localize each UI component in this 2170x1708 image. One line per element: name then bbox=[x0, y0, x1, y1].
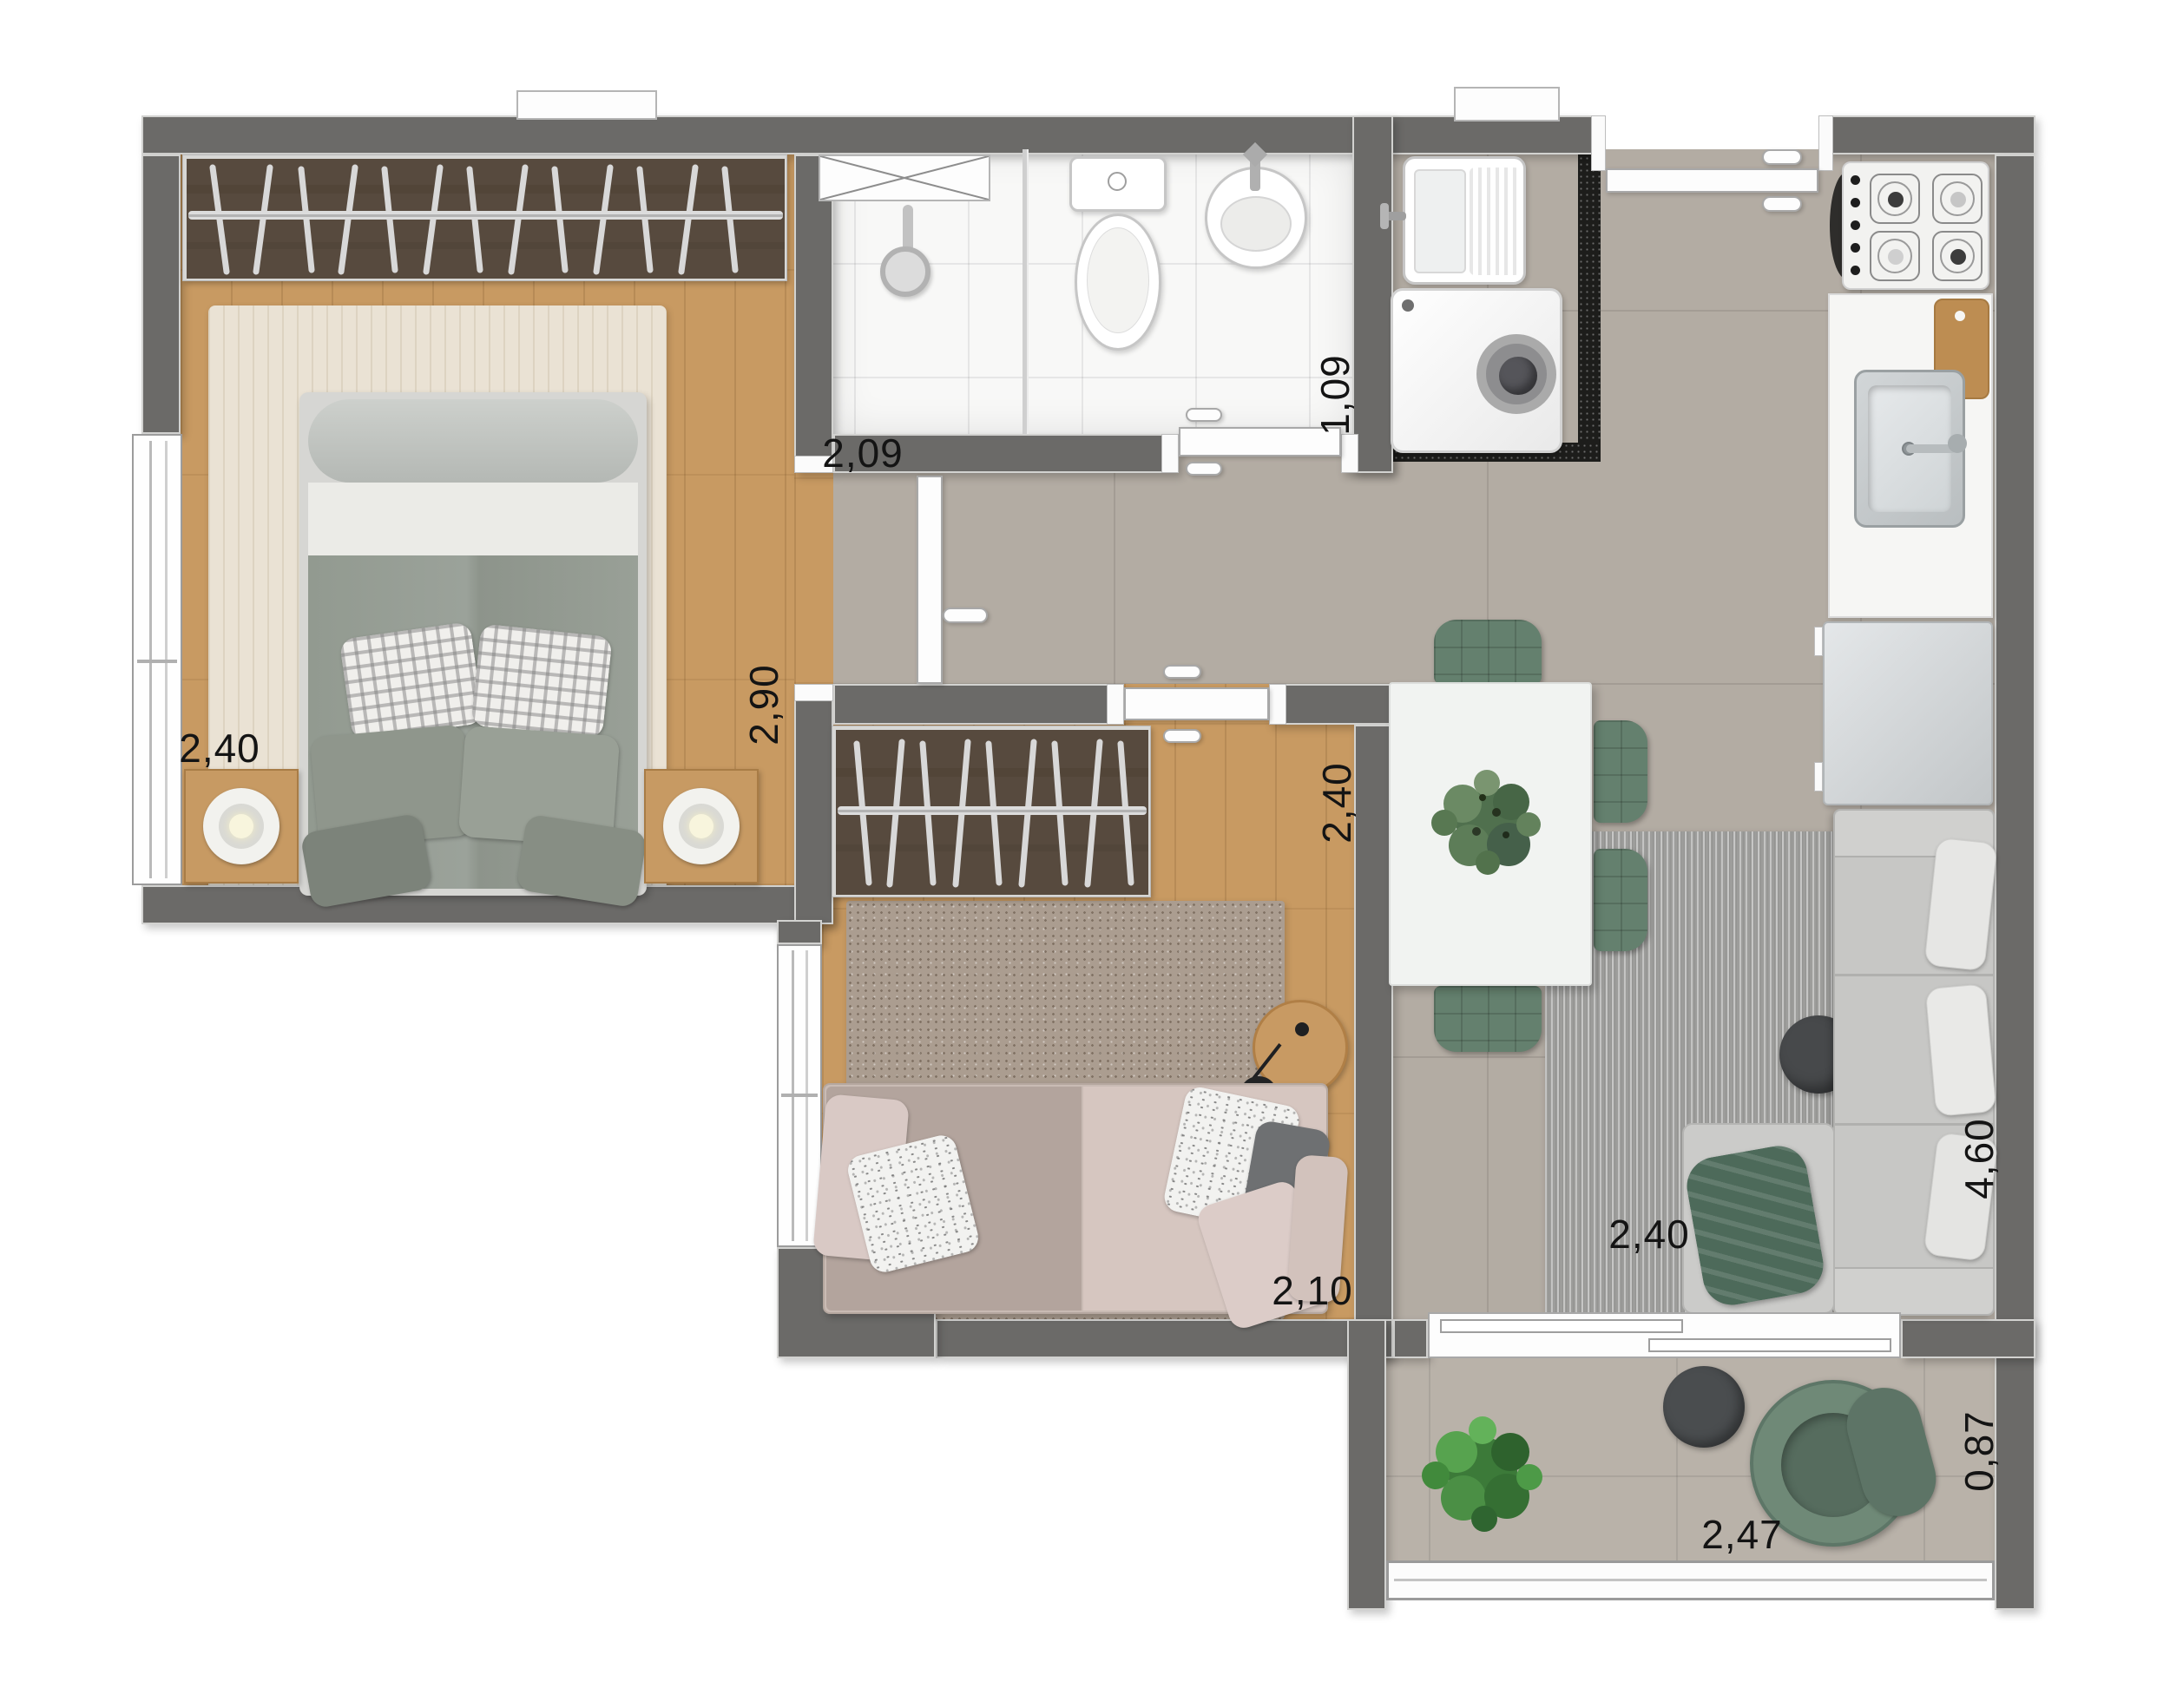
door-handle-icon bbox=[943, 608, 988, 623]
dimension-label-living-depth: 4,60 bbox=[1957, 1102, 2001, 1215]
washing-machine-icon bbox=[1391, 288, 1562, 453]
toilet-flush-button bbox=[1108, 172, 1127, 191]
bedroom-2-closet bbox=[832, 726, 1151, 897]
stove-knob bbox=[1851, 175, 1860, 185]
door-handle-icon bbox=[1186, 408, 1222, 422]
wall-segment bbox=[1393, 1319, 1428, 1358]
sofa-armrest bbox=[1835, 1267, 1993, 1314]
toilet-seat-line bbox=[1087, 227, 1149, 333]
dining-chair bbox=[1594, 720, 1647, 823]
gas-stove-icon bbox=[1842, 161, 1989, 290]
burner-icon bbox=[1870, 231, 1920, 281]
wall-segment bbox=[1352, 115, 1393, 473]
laundry-sink-icon bbox=[1403, 156, 1526, 285]
door-jamb bbox=[1161, 434, 1179, 473]
wall-segment bbox=[1901, 1319, 2035, 1358]
laundry-sink-basin bbox=[1414, 169, 1466, 273]
door-handle-icon bbox=[1762, 196, 1802, 212]
shower-arm bbox=[903, 205, 913, 252]
bedroom-1-door-threshold-floor bbox=[794, 473, 833, 684]
ventilation-shaft-icon bbox=[819, 154, 990, 201]
stove-knob bbox=[1851, 220, 1860, 230]
wall-segment bbox=[141, 154, 181, 434]
wall-segment bbox=[936, 1319, 1393, 1358]
door-jamb bbox=[794, 684, 833, 701]
dining-chair bbox=[1434, 620, 1542, 684]
wall-segment bbox=[1995, 154, 2035, 1610]
stove-knob bbox=[1851, 266, 1860, 275]
nightstand-lamp-glow bbox=[689, 814, 713, 838]
door-handle-icon bbox=[1762, 149, 1802, 165]
window-sash-divider bbox=[137, 660, 177, 663]
sliding-door bbox=[1428, 1312, 1901, 1358]
dimension-label-bathroom-width: 2,09 bbox=[806, 431, 919, 475]
railing-line bbox=[1394, 1579, 1987, 1581]
dining-chair bbox=[1594, 849, 1647, 951]
closet-hangers-icon bbox=[187, 159, 785, 279]
door-handle-icon bbox=[1163, 729, 1201, 743]
laundry-faucet-handle bbox=[1380, 203, 1389, 229]
dimension-label-balcony-depth: 0,87 bbox=[1957, 1395, 2001, 1508]
burner-icon bbox=[1932, 231, 1983, 281]
stove-knob bbox=[1851, 243, 1860, 253]
fridge-hinge bbox=[1814, 627, 1823, 656]
wall-segment bbox=[794, 684, 833, 924]
laundry-sink-ribs bbox=[1470, 168, 1520, 275]
dimension-label-bedroom2-depth: 2,40 bbox=[1315, 746, 1358, 859]
window-sash-divider bbox=[781, 1094, 818, 1097]
bed-pillow bbox=[470, 623, 613, 739]
bedroom-2-door-leaf bbox=[1124, 687, 1269, 720]
dimension-label-bedroom1-depth: 2,90 bbox=[742, 648, 786, 761]
shower-glass-partition bbox=[1023, 149, 1027, 434]
wall-segment bbox=[1269, 684, 1393, 725]
kitchen-faucet-base bbox=[1948, 434, 1967, 453]
shower-head-icon bbox=[880, 246, 930, 297]
bedroom-2-window bbox=[777, 944, 822, 1247]
dimension-label-bathroom-depth: 1,09 bbox=[1313, 338, 1357, 451]
bedroom-1-door-leaf bbox=[917, 476, 943, 684]
door-jamb bbox=[1818, 115, 1833, 171]
entry-door-leaf bbox=[1606, 168, 1818, 193]
door-handle-icon bbox=[1186, 462, 1222, 476]
sliding-panel bbox=[1648, 1338, 1891, 1352]
wall-segment bbox=[777, 920, 822, 944]
table-plant-icon bbox=[1422, 759, 1552, 889]
washer-drum bbox=[1499, 357, 1537, 395]
balcony-plant-icon bbox=[1413, 1404, 1552, 1543]
wall-segment bbox=[833, 684, 1124, 725]
bedroom-1-window bbox=[132, 434, 182, 885]
wall-segment bbox=[1354, 725, 1393, 1358]
bed-pillow bbox=[339, 621, 484, 741]
bed-rolled-blanket bbox=[308, 399, 638, 483]
dimension-label-bedroom2-width: 2,10 bbox=[1256, 1269, 1369, 1312]
burner-icon bbox=[1870, 174, 1920, 224]
sliding-panel bbox=[1440, 1319, 1683, 1333]
balcony-side-table-icon bbox=[1663, 1366, 1745, 1448]
door-jamb bbox=[1591, 115, 1606, 171]
wall-segment bbox=[1823, 115, 2035, 154]
duct-box bbox=[1454, 87, 1560, 122]
refrigerator-icon bbox=[1823, 621, 1993, 805]
laundry-counter-edge-vertical bbox=[1578, 149, 1601, 458]
sofa-cushion-line bbox=[1835, 974, 1993, 976]
door-jamb bbox=[1107, 684, 1124, 725]
balcony-railing bbox=[1386, 1560, 1995, 1600]
stove-knob bbox=[1851, 198, 1860, 207]
dimension-label-bedroom1-width: 2,40 bbox=[163, 726, 276, 770]
sofa-pillow bbox=[1925, 983, 1997, 1117]
bed-sheet bbox=[308, 483, 638, 559]
burner-icon bbox=[1932, 174, 1983, 224]
lamp-dot bbox=[1295, 1022, 1309, 1036]
door-jamb bbox=[1269, 684, 1286, 725]
door-handle-icon bbox=[1163, 665, 1201, 679]
bedroom-1-closet bbox=[182, 154, 787, 281]
washbasin-bowl bbox=[1220, 196, 1292, 252]
wall-segment bbox=[794, 154, 833, 473]
wall-segment bbox=[1347, 1319, 1386, 1610]
floor-plan-canvas: 2,40 2,90 2,09 1,09 2,10 2,40 2,40 4,60 … bbox=[0, 0, 2170, 1708]
duct-box bbox=[516, 90, 657, 120]
dining-chair bbox=[1434, 986, 1542, 1052]
fridge-hinge bbox=[1814, 762, 1823, 792]
closet-hangers-icon bbox=[836, 730, 1148, 895]
washer-knob bbox=[1402, 299, 1414, 312]
nightstand-lamp-glow bbox=[229, 814, 253, 838]
dimension-label-balcony-width: 2,47 bbox=[1686, 1513, 1798, 1556]
dimension-label-living-width: 2,40 bbox=[1593, 1212, 1706, 1256]
